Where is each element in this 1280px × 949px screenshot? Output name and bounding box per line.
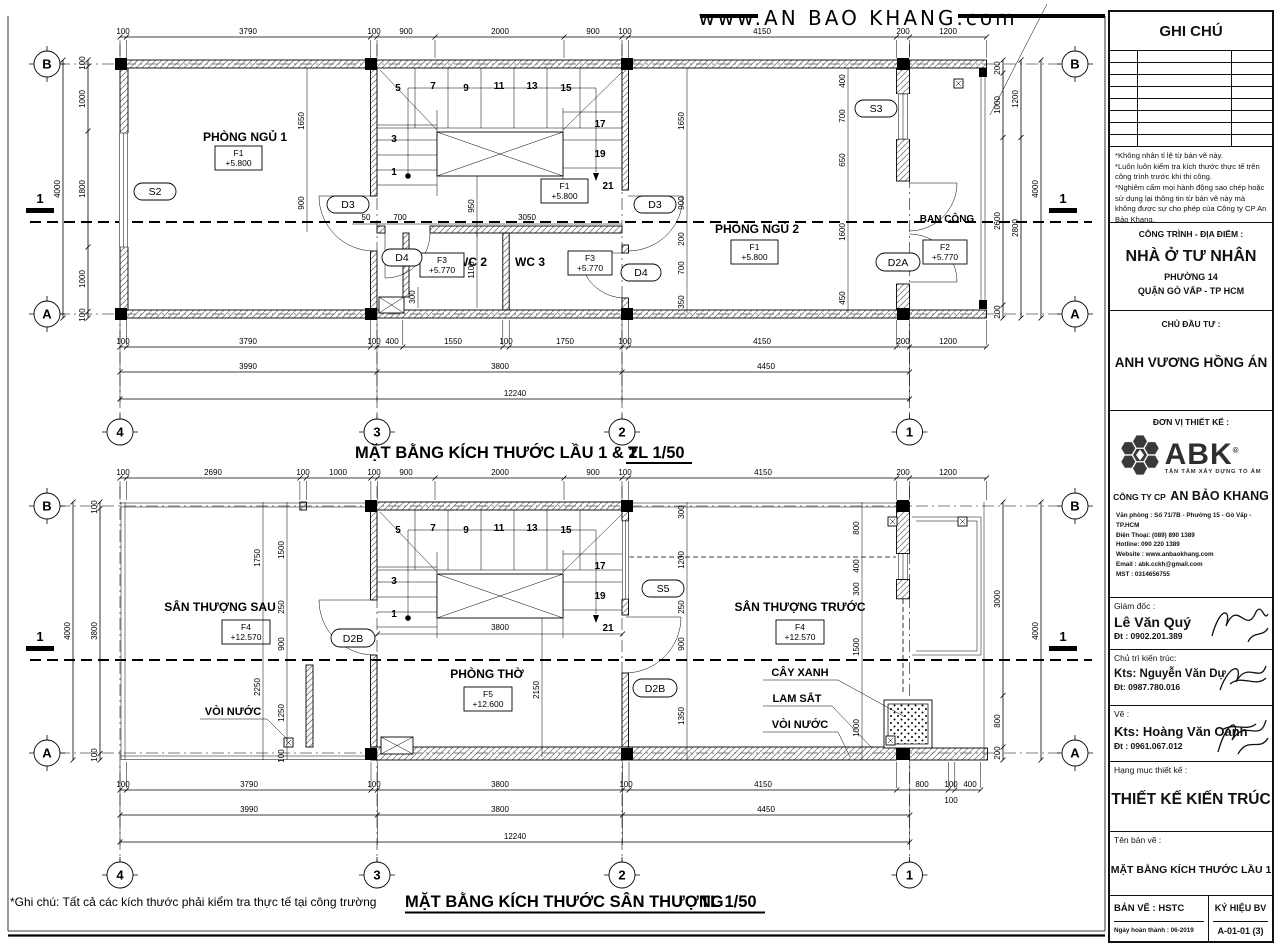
svg-text:2250: 2250 <box>253 678 262 696</box>
room-balcony: BAN CÔNG <box>920 212 975 225</box>
project-district: QUẬN GÒ VẤP - TP HCM <box>1110 286 1272 296</box>
svg-text:2: 2 <box>618 868 625 883</box>
hang-muc-value: THIẾT KẾ KIẾN TRÚC <box>1110 791 1272 809</box>
giam-doc-section: Giám đốc : Lê Văn Quý Đt : 0902.201.389 <box>1110 597 1272 649</box>
svg-text:1500: 1500 <box>277 541 286 559</box>
designer-label: ĐƠN VỊ THIẾT KẾ : <box>1110 411 1272 427</box>
door-tag-d2b: D2B <box>343 633 363 645</box>
svg-text:3050: 3050 <box>518 213 536 222</box>
abk-logo-text: ABK® <box>1165 437 1262 469</box>
svg-text:700: 700 <box>393 213 407 222</box>
stair-arrow <box>593 173 599 181</box>
svg-text:1750: 1750 <box>253 549 262 567</box>
svg-text:13: 13 <box>526 81 538 92</box>
svg-text:1200: 1200 <box>939 337 957 346</box>
svg-text:900: 900 <box>399 468 413 477</box>
svg-text:3990: 3990 <box>239 362 257 371</box>
svg-text:800: 800 <box>915 780 929 789</box>
svg-text:1350: 1350 <box>677 707 686 725</box>
svg-text:1000: 1000 <box>78 90 87 108</box>
table-cell <box>1232 99 1272 111</box>
svg-text:4150: 4150 <box>754 468 772 477</box>
grid-bubble-a-left: A <box>29 735 65 771</box>
note-line: *Nghiêm cấm mọi hành động sao chép hoặc … <box>1115 183 1267 222</box>
label-iron-louver: LAM SẮT <box>773 692 822 705</box>
grid-bubble-a-right: A <box>1057 735 1093 771</box>
svg-text:4450: 4450 <box>757 805 775 814</box>
grid-bubble-2: 2 <box>604 857 640 888</box>
table-cell <box>1110 51 1138 63</box>
svg-text:1800: 1800 <box>78 180 87 198</box>
window-tag-s2: S2 <box>149 186 162 198</box>
svg-text:1000: 1000 <box>78 270 87 288</box>
svg-text:100: 100 <box>618 468 632 477</box>
abk-logo-icon <box>1121 433 1161 479</box>
svg-text:2690: 2690 <box>204 468 222 477</box>
svg-text:3: 3 <box>373 868 380 883</box>
svg-text:200: 200 <box>896 337 910 346</box>
svg-text:100: 100 <box>116 780 130 789</box>
svg-text:100: 100 <box>944 780 958 789</box>
plan-drawing: www.AN BAO KHANG.com <box>0 0 1108 949</box>
label-tree: CÂY XANH <box>771 666 828 679</box>
architect-signature <box>1216 654 1270 700</box>
svg-text:1: 1 <box>36 191 43 206</box>
svg-text:4150: 4150 <box>753 27 771 36</box>
table-cell <box>1110 99 1138 111</box>
svg-text:100: 100 <box>619 780 633 789</box>
plan2-title-scale: TL 1/50 <box>700 893 757 911</box>
svg-text:1: 1 <box>36 629 43 644</box>
grid-bubble-1: 1 <box>892 414 928 445</box>
plan2-stairs: 5 7 9 11 13 15 17 19 21 3 1 <box>377 510 622 638</box>
svg-text:1200: 1200 <box>677 551 686 569</box>
ban-ve-cell: BẢN VẼ : HSTC <box>1114 900 1204 922</box>
svg-text:+5.770: +5.770 <box>577 263 604 273</box>
table-cell <box>1110 111 1138 123</box>
table-cell <box>1138 87 1232 99</box>
room-worship: PHÒNG THỜ <box>450 666 524 681</box>
svg-text:19: 19 <box>594 591 606 602</box>
svg-text:100: 100 <box>116 337 130 346</box>
svg-text:9: 9 <box>463 83 469 94</box>
code-cell: A-01-01 (3) <box>1213 922 1268 937</box>
grid-bubble-a-right: A <box>1057 296 1093 332</box>
svg-text:450: 450 <box>838 291 847 305</box>
svg-text:1: 1 <box>906 425 913 440</box>
table-cell <box>1110 123 1138 135</box>
svg-text:100: 100 <box>277 749 286 763</box>
grid-bubble-b-right: B <box>1057 488 1093 524</box>
svg-text:F4: F4 <box>241 622 251 632</box>
cong-trinh-section: CÔNG TRÌNH - ĐỊA ĐIỂM : NHÀ Ở TƯ NHÂN PH… <box>1110 222 1272 310</box>
svg-text:400: 400 <box>963 780 977 789</box>
svg-text:700: 700 <box>677 261 686 275</box>
svg-text:3800: 3800 <box>491 623 509 632</box>
svg-text:3800: 3800 <box>90 622 99 640</box>
svg-text:400: 400 <box>838 74 847 88</box>
svg-text:3000: 3000 <box>993 590 1002 608</box>
svg-text:B: B <box>42 499 51 514</box>
plan2-title-text: MẶT BẰNG KÍCH THƯỚC SÂN THƯỢNG <box>405 892 724 911</box>
grid-bubble-b-left: B <box>29 488 65 524</box>
plan2-title: *Ghi chú: Tất cả các kích thước phải kiể… <box>10 892 765 913</box>
table-cell <box>1110 135 1138 146</box>
svg-text:1000: 1000 <box>852 719 861 737</box>
svg-text:7: 7 <box>430 81 436 92</box>
room-bedroom2: PHÒNG NGỦ 2 <box>715 221 799 236</box>
ghi-chu-section: GHI CHÚ <box>1110 12 1272 50</box>
door-tag-d2a: D2A <box>888 257 908 269</box>
label-faucet-left: VÒI NƯỚC <box>205 705 261 718</box>
table-cell <box>1232 63 1272 75</box>
svg-text:F4: F4 <box>795 622 805 632</box>
hang-muc-section: Hạng mục thiết kế : THIẾT KẾ KIẾN TRÚC <box>1110 761 1272 831</box>
svg-text:9: 9 <box>463 525 469 536</box>
svg-text:3790: 3790 <box>239 337 257 346</box>
svg-text:F1: F1 <box>234 148 244 158</box>
svg-text:A: A <box>1070 307 1080 322</box>
svg-text:11: 11 <box>494 81 505 92</box>
svg-text:7: 7 <box>430 523 436 534</box>
svg-text:4000: 4000 <box>53 180 62 198</box>
svg-text:1: 1 <box>1059 629 1066 644</box>
svg-text:3800: 3800 <box>491 780 509 789</box>
svg-text:1600: 1600 <box>838 223 847 241</box>
svg-text:200: 200 <box>993 305 1002 319</box>
svg-text:1000: 1000 <box>993 96 1002 114</box>
svg-text:4150: 4150 <box>754 780 772 789</box>
section-marker-left: 1 <box>26 191 54 213</box>
door-tag-d3: D3 <box>341 199 355 211</box>
svg-text:+5.800: +5.800 <box>225 158 252 168</box>
door-tag-d4: D4 <box>395 252 409 264</box>
svg-text:100: 100 <box>618 27 632 36</box>
svg-text:4000: 4000 <box>63 622 72 640</box>
owner-name: ANH VƯƠNG HỒNG ÁN <box>1110 355 1272 370</box>
table-cell <box>1138 111 1232 123</box>
grid-bubble-2: 2 <box>604 414 640 445</box>
svg-text:3990: 3990 <box>240 805 258 814</box>
svg-text:100: 100 <box>116 468 130 477</box>
door-tag-d3: D3 <box>648 199 662 211</box>
table-cell <box>1138 63 1232 75</box>
company-contact: Văn phòng : Số 71/7B - Phường 15 - Gò Vấ… <box>1110 505 1272 579</box>
svg-text:50: 50 <box>362 213 371 222</box>
svg-text:300: 300 <box>677 505 686 519</box>
svg-text:+5.770: +5.770 <box>932 252 959 262</box>
svg-text:300: 300 <box>408 290 417 304</box>
svg-text:400: 400 <box>852 559 861 573</box>
footer-section: BẢN VẼ : HSTC Ngày hoàn thành : 06-2019 … <box>1110 895 1272 941</box>
svg-text:1200: 1200 <box>939 468 957 477</box>
table-cell <box>1138 99 1232 111</box>
svg-text:4000: 4000 <box>1031 622 1040 640</box>
abk-logo: ABK® TẬN TÂM XÂY DỰNG TỔ ẤM <box>1110 433 1272 479</box>
svg-text:+5.800: +5.800 <box>551 191 578 201</box>
grid-bubble-3: 3 <box>359 857 395 888</box>
svg-text:B: B <box>1070 57 1079 72</box>
website-text: www.AN BAO KHANG.com <box>698 6 1017 30</box>
svg-text:400: 400 <box>385 337 399 346</box>
svg-text:100: 100 <box>296 468 310 477</box>
title-block: GHI CHÚ *Không nhân tỉ lệ từ bản vẽ này.… <box>1108 10 1274 943</box>
svg-text:800: 800 <box>852 521 861 535</box>
svg-text:4: 4 <box>116 868 124 883</box>
svg-text:350: 350 <box>677 295 686 309</box>
svg-text:+5.800: +5.800 <box>741 252 768 262</box>
svg-text:21: 21 <box>602 181 614 192</box>
svg-text:17: 17 <box>594 561 606 572</box>
svg-text:A: A <box>42 307 52 322</box>
svg-text:+12.600: +12.600 <box>473 699 504 709</box>
plan1-title-scale: TL 1/50 <box>628 444 685 462</box>
room-terrace-back: SÂN THƯỢNG SAU <box>164 599 276 614</box>
svg-text:250: 250 <box>277 600 286 614</box>
svg-text:12240: 12240 <box>504 832 527 841</box>
svg-text:3800: 3800 <box>491 362 509 371</box>
table-cell <box>1138 135 1232 146</box>
table-cell <box>1138 51 1232 63</box>
svg-text:900: 900 <box>277 637 286 651</box>
svg-text:11: 11 <box>494 523 505 534</box>
don-vi-section: ĐƠN VỊ THIẾT KẾ : ABK® TẬN TÂM XÂY DỰNG … <box>1110 410 1272 597</box>
drawing-name: MẶT BẰNG KÍCH THƯỚC LẦU 1 <box>1110 864 1272 876</box>
grid-bubble-1: 1 <box>892 857 928 888</box>
svg-text:2: 2 <box>618 425 625 440</box>
svg-text:5: 5 <box>395 525 401 536</box>
table-cell <box>1138 123 1232 135</box>
chu-tri-section: Chủ trì kiến trúc: Kts: Nguyễn Văn Dự Đt… <box>1110 649 1272 705</box>
plan1-columns <box>115 58 909 320</box>
svg-text:100: 100 <box>90 500 99 514</box>
stair-arrow <box>593 615 599 623</box>
grid-bubble-b-left: B <box>29 46 65 82</box>
plan1-labels: PHÒNG NGỦ 1 F1 +5.800 S2 D3 D3 F1 +5.800… <box>134 100 974 281</box>
svg-text:13: 13 <box>526 523 538 534</box>
plan1: 5 7 9 11 13 15 17 19 21 3 1 <box>26 27 1093 463</box>
room-wc3: WC 3 <box>515 255 545 269</box>
svg-text:200: 200 <box>677 232 686 246</box>
svg-text:15: 15 <box>560 525 572 536</box>
cong-trinh-label: CÔNG TRÌNH - ĐỊA ĐIỂM : <box>1110 223 1272 239</box>
table-cell <box>1232 75 1272 87</box>
table-cell <box>1110 75 1138 87</box>
svg-text:15: 15 <box>560 83 572 94</box>
svg-text:300: 300 <box>852 582 861 596</box>
svg-text:1650: 1650 <box>297 112 306 130</box>
svg-text:4150: 4150 <box>753 337 771 346</box>
svg-text:F3: F3 <box>585 253 595 263</box>
stair-start-dot <box>405 615 411 621</box>
svg-text:1200: 1200 <box>1011 90 1020 108</box>
svg-text:1: 1 <box>1059 191 1066 206</box>
svg-text:F5: F5 <box>483 689 493 699</box>
svg-text:800: 800 <box>993 714 1002 728</box>
svg-text:4000: 4000 <box>1031 180 1040 198</box>
svg-text:100: 100 <box>367 780 381 789</box>
svg-text:4: 4 <box>116 425 124 440</box>
plan2-footer-note: *Ghi chú: Tất cả các kích thước phải kiể… <box>10 895 376 909</box>
svg-text:200: 200 <box>993 61 1002 75</box>
revision-table <box>1110 50 1272 146</box>
window-tag-s3: S3 <box>870 103 883 115</box>
drafter-signature <box>1212 710 1270 760</box>
svg-text:100: 100 <box>78 308 87 322</box>
svg-text:3800: 3800 <box>491 805 509 814</box>
project-name: NHÀ Ở TƯ NHÂN <box>1110 248 1272 266</box>
room-bedroom1: PHÒNG NGỦ 1 <box>203 129 287 144</box>
svg-text:2000: 2000 <box>491 468 509 477</box>
svg-text:F3: F3 <box>437 255 447 265</box>
svg-text:3: 3 <box>391 576 397 587</box>
svg-text:1100: 1100 <box>467 261 476 279</box>
svg-text:100: 100 <box>618 337 632 346</box>
grid-bubble-4: 4 <box>102 414 138 445</box>
svg-text:2800: 2800 <box>1011 219 1020 237</box>
svg-text:B: B <box>42 57 51 72</box>
svg-text:1750: 1750 <box>556 337 574 346</box>
section-marker-right: 1 <box>1049 629 1077 651</box>
svg-text:17: 17 <box>594 119 606 130</box>
director-signature <box>1208 602 1270 646</box>
svg-text:900: 900 <box>399 27 413 36</box>
svg-text:1500: 1500 <box>852 638 861 656</box>
svg-text:100: 100 <box>499 337 513 346</box>
table-cell <box>1232 123 1272 135</box>
svg-text:1250: 1250 <box>277 704 286 722</box>
svg-text:200: 200 <box>896 27 910 36</box>
plan2: 5 7 9 11 13 15 17 19 21 3 1 <box>10 468 1093 913</box>
svg-text:1200: 1200 <box>939 27 957 36</box>
svg-text:A: A <box>42 746 52 761</box>
section-marker-left: 1 <box>26 629 54 651</box>
svg-text:900: 900 <box>297 196 306 210</box>
table-cell <box>1232 135 1272 146</box>
svg-text:A: A <box>1070 746 1080 761</box>
svg-text:900: 900 <box>586 468 600 477</box>
room-terrace-front: SÂN THƯỢNG TRƯỚC <box>734 599 865 614</box>
svg-text:200: 200 <box>993 746 1002 760</box>
svg-text:100: 100 <box>90 748 99 762</box>
svg-text:200: 200 <box>896 468 910 477</box>
svg-text:2000: 2000 <box>491 27 509 36</box>
svg-text:12240: 12240 <box>504 389 527 398</box>
svg-text:100: 100 <box>367 337 381 346</box>
svg-text:650: 650 <box>838 153 847 167</box>
svg-text:1: 1 <box>906 868 913 883</box>
svg-text:1: 1 <box>391 167 397 178</box>
section-marker-right: 1 <box>1049 191 1077 213</box>
stair-start-dot <box>405 173 411 179</box>
svg-text:F1: F1 <box>560 181 570 191</box>
ve-section: Vẽ : Kts: Hoàng Văn Oanh Đt : 0961.067.0… <box>1110 705 1272 761</box>
table-cell <box>1138 75 1232 87</box>
grid-bubble-b-right: B <box>1057 46 1093 82</box>
drawing-sheet: www.AN BAO KHANG.com <box>0 0 1280 949</box>
svg-text:3: 3 <box>391 134 397 145</box>
svg-text:3790: 3790 <box>239 27 257 36</box>
ngay-cell: Ngày hoàn thành : 06-2019 <box>1114 922 1204 937</box>
grid-bubble-3: 3 <box>359 414 395 445</box>
svg-text:19: 19 <box>594 149 606 160</box>
svg-text:100: 100 <box>367 27 381 36</box>
svg-text:1: 1 <box>391 609 397 620</box>
hang-muc-label: Hạng mục thiết kế : <box>1110 762 1272 778</box>
plan2-windows <box>622 521 630 599</box>
notes-section: *Không nhân tỉ lệ từ bản vẽ này. *Luôn l… <box>1110 146 1272 222</box>
plan1-stairs: 5 7 9 11 13 15 17 19 21 3 1 <box>377 68 622 196</box>
table-cell <box>1232 51 1272 63</box>
chu-dau-tu-section: CHỦ ĐẦU TƯ : ANH VƯƠNG HỒNG ÁN <box>1110 310 1272 410</box>
svg-text:3790: 3790 <box>240 780 258 789</box>
svg-text:900: 900 <box>586 27 600 36</box>
owner-label: CHỦ ĐẦU TƯ : <box>1110 311 1272 329</box>
project-ward: PHƯỜNG 14 <box>1110 272 1272 282</box>
svg-text:B: B <box>1070 499 1079 514</box>
grid-bubble-a-left: A <box>29 296 65 332</box>
svg-text:5: 5 <box>395 83 401 94</box>
ten-ban-ve-label: Tên bản vẽ : <box>1110 832 1272 848</box>
svg-text:100: 100 <box>367 468 381 477</box>
ghi-chu-title: GHI CHÚ <box>1110 12 1272 40</box>
door-tag-d4: D4 <box>634 267 648 279</box>
svg-text:950: 950 <box>467 199 476 213</box>
ky-hieu-cell: KÝ HIỆU BV <box>1213 900 1268 922</box>
company-name-line: CÔNG TY CP AN BẢO KHANG <box>1110 487 1272 505</box>
svg-text:F2: F2 <box>940 242 950 252</box>
plan1-title: MẶT BẰNG KÍCH THƯỚC LẦU 1 & 2 TL 1/50 <box>355 443 692 463</box>
window-tag-s5: S5 <box>657 583 670 595</box>
svg-text:1650: 1650 <box>677 112 686 130</box>
grid-bubble-4: 4 <box>102 857 138 888</box>
plan1-dimensions: 100 3790 100 900 2000 900 100 4150 200 1… <box>53 27 1044 402</box>
svg-text:100: 100 <box>116 27 130 36</box>
plan2-grid: B A B A 4 3 2 1 1 1 <box>26 488 1093 888</box>
svg-text:+12.570: +12.570 <box>231 632 262 642</box>
svg-text:1550: 1550 <box>444 337 462 346</box>
svg-text:1000: 1000 <box>329 468 347 477</box>
svg-text:4450: 4450 <box>757 362 775 371</box>
svg-text:250: 250 <box>677 600 686 614</box>
table-cell <box>1232 111 1272 123</box>
svg-text:100: 100 <box>78 56 87 70</box>
table-cell <box>1232 87 1272 99</box>
ten-ban-ve-section: Tên bản vẽ : MẶT BẰNG KÍCH THƯỚC LẦU 1 <box>1110 831 1272 895</box>
svg-text:+12.570: +12.570 <box>785 632 816 642</box>
table-cell <box>1110 87 1138 99</box>
svg-text:2600: 2600 <box>993 212 1002 230</box>
abk-logo-tagline: TẬN TÂM XÂY DỰNG TỔ ẤM <box>1165 469 1262 475</box>
note-line: *Không nhân tỉ lệ từ bản vẽ này. <box>1115 151 1267 162</box>
plan1-title-text: MẶT BẰNG KÍCH THƯỚC LẦU 1 & 2 <box>355 443 638 462</box>
svg-text:3: 3 <box>373 425 380 440</box>
svg-text:+5.770: +5.770 <box>429 265 456 275</box>
svg-text:900: 900 <box>677 637 686 651</box>
svg-text:900: 900 <box>677 196 686 210</box>
door-tag-d2b: D2B <box>645 683 665 695</box>
svg-text:100: 100 <box>944 796 958 805</box>
label-faucet-right: VÒI NƯỚC <box>772 718 828 731</box>
note-line: *Luôn luôn kiểm tra kích thước thực tế t… <box>1115 162 1267 183</box>
svg-text:21: 21 <box>602 623 614 634</box>
table-cell <box>1110 63 1138 75</box>
svg-text:700: 700 <box>838 109 847 123</box>
svg-text:2150: 2150 <box>532 681 541 699</box>
svg-text:F1: F1 <box>750 242 760 252</box>
